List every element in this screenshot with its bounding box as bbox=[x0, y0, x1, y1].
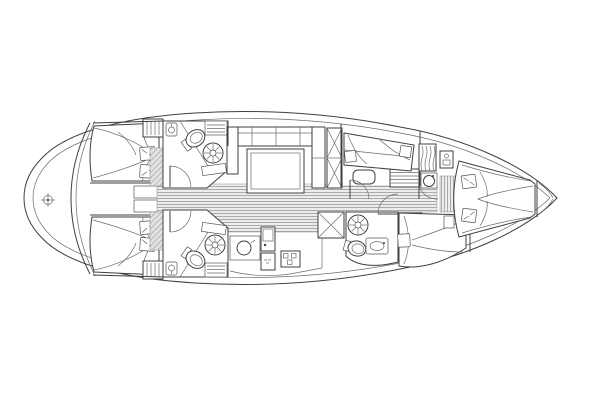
stern-platform bbox=[41, 121, 95, 276]
head-bottom bbox=[163, 210, 228, 277]
louvered-shelf bbox=[205, 121, 227, 135]
hanging-locker bbox=[419, 144, 436, 171]
wardrobe-x-locker bbox=[327, 128, 342, 188]
seat bbox=[353, 170, 375, 184]
side-table bbox=[444, 216, 454, 228]
helm-compass-icon bbox=[41, 193, 55, 207]
burner-hob bbox=[281, 251, 300, 267]
galley-sink-icon bbox=[230, 236, 260, 260]
stern-center-console bbox=[90, 183, 158, 215]
pillow bbox=[461, 174, 477, 189]
floor-plan-drawing bbox=[0, 0, 600, 400]
fridge-x-box bbox=[318, 212, 344, 238]
bow-structure bbox=[537, 180, 553, 217]
pillow bbox=[398, 234, 411, 248]
head-top bbox=[163, 121, 228, 188]
pillow bbox=[399, 145, 411, 157]
washbasin-icon bbox=[166, 262, 177, 275]
shower-fan-icon bbox=[348, 215, 368, 235]
louvered-shelf bbox=[205, 263, 227, 277]
yacht-floor-plan bbox=[0, 0, 600, 400]
salon-table bbox=[247, 149, 304, 193]
stern-locker bbox=[134, 186, 158, 198]
shower-fan-icon bbox=[203, 143, 223, 163]
pillow bbox=[344, 150, 356, 162]
shower-fan-icon bbox=[205, 235, 225, 255]
salon bbox=[227, 127, 342, 193]
vanity-sink-icon bbox=[421, 173, 437, 188]
v-berth bbox=[454, 161, 535, 237]
stove-oven bbox=[261, 227, 275, 270]
companionway-steps-upper bbox=[390, 169, 419, 187]
washbasin-icon bbox=[166, 123, 177, 136]
washbasin-icon bbox=[366, 238, 388, 254]
water-heater bbox=[440, 151, 453, 168]
pillow bbox=[461, 208, 477, 223]
stern-locker bbox=[134, 200, 158, 212]
